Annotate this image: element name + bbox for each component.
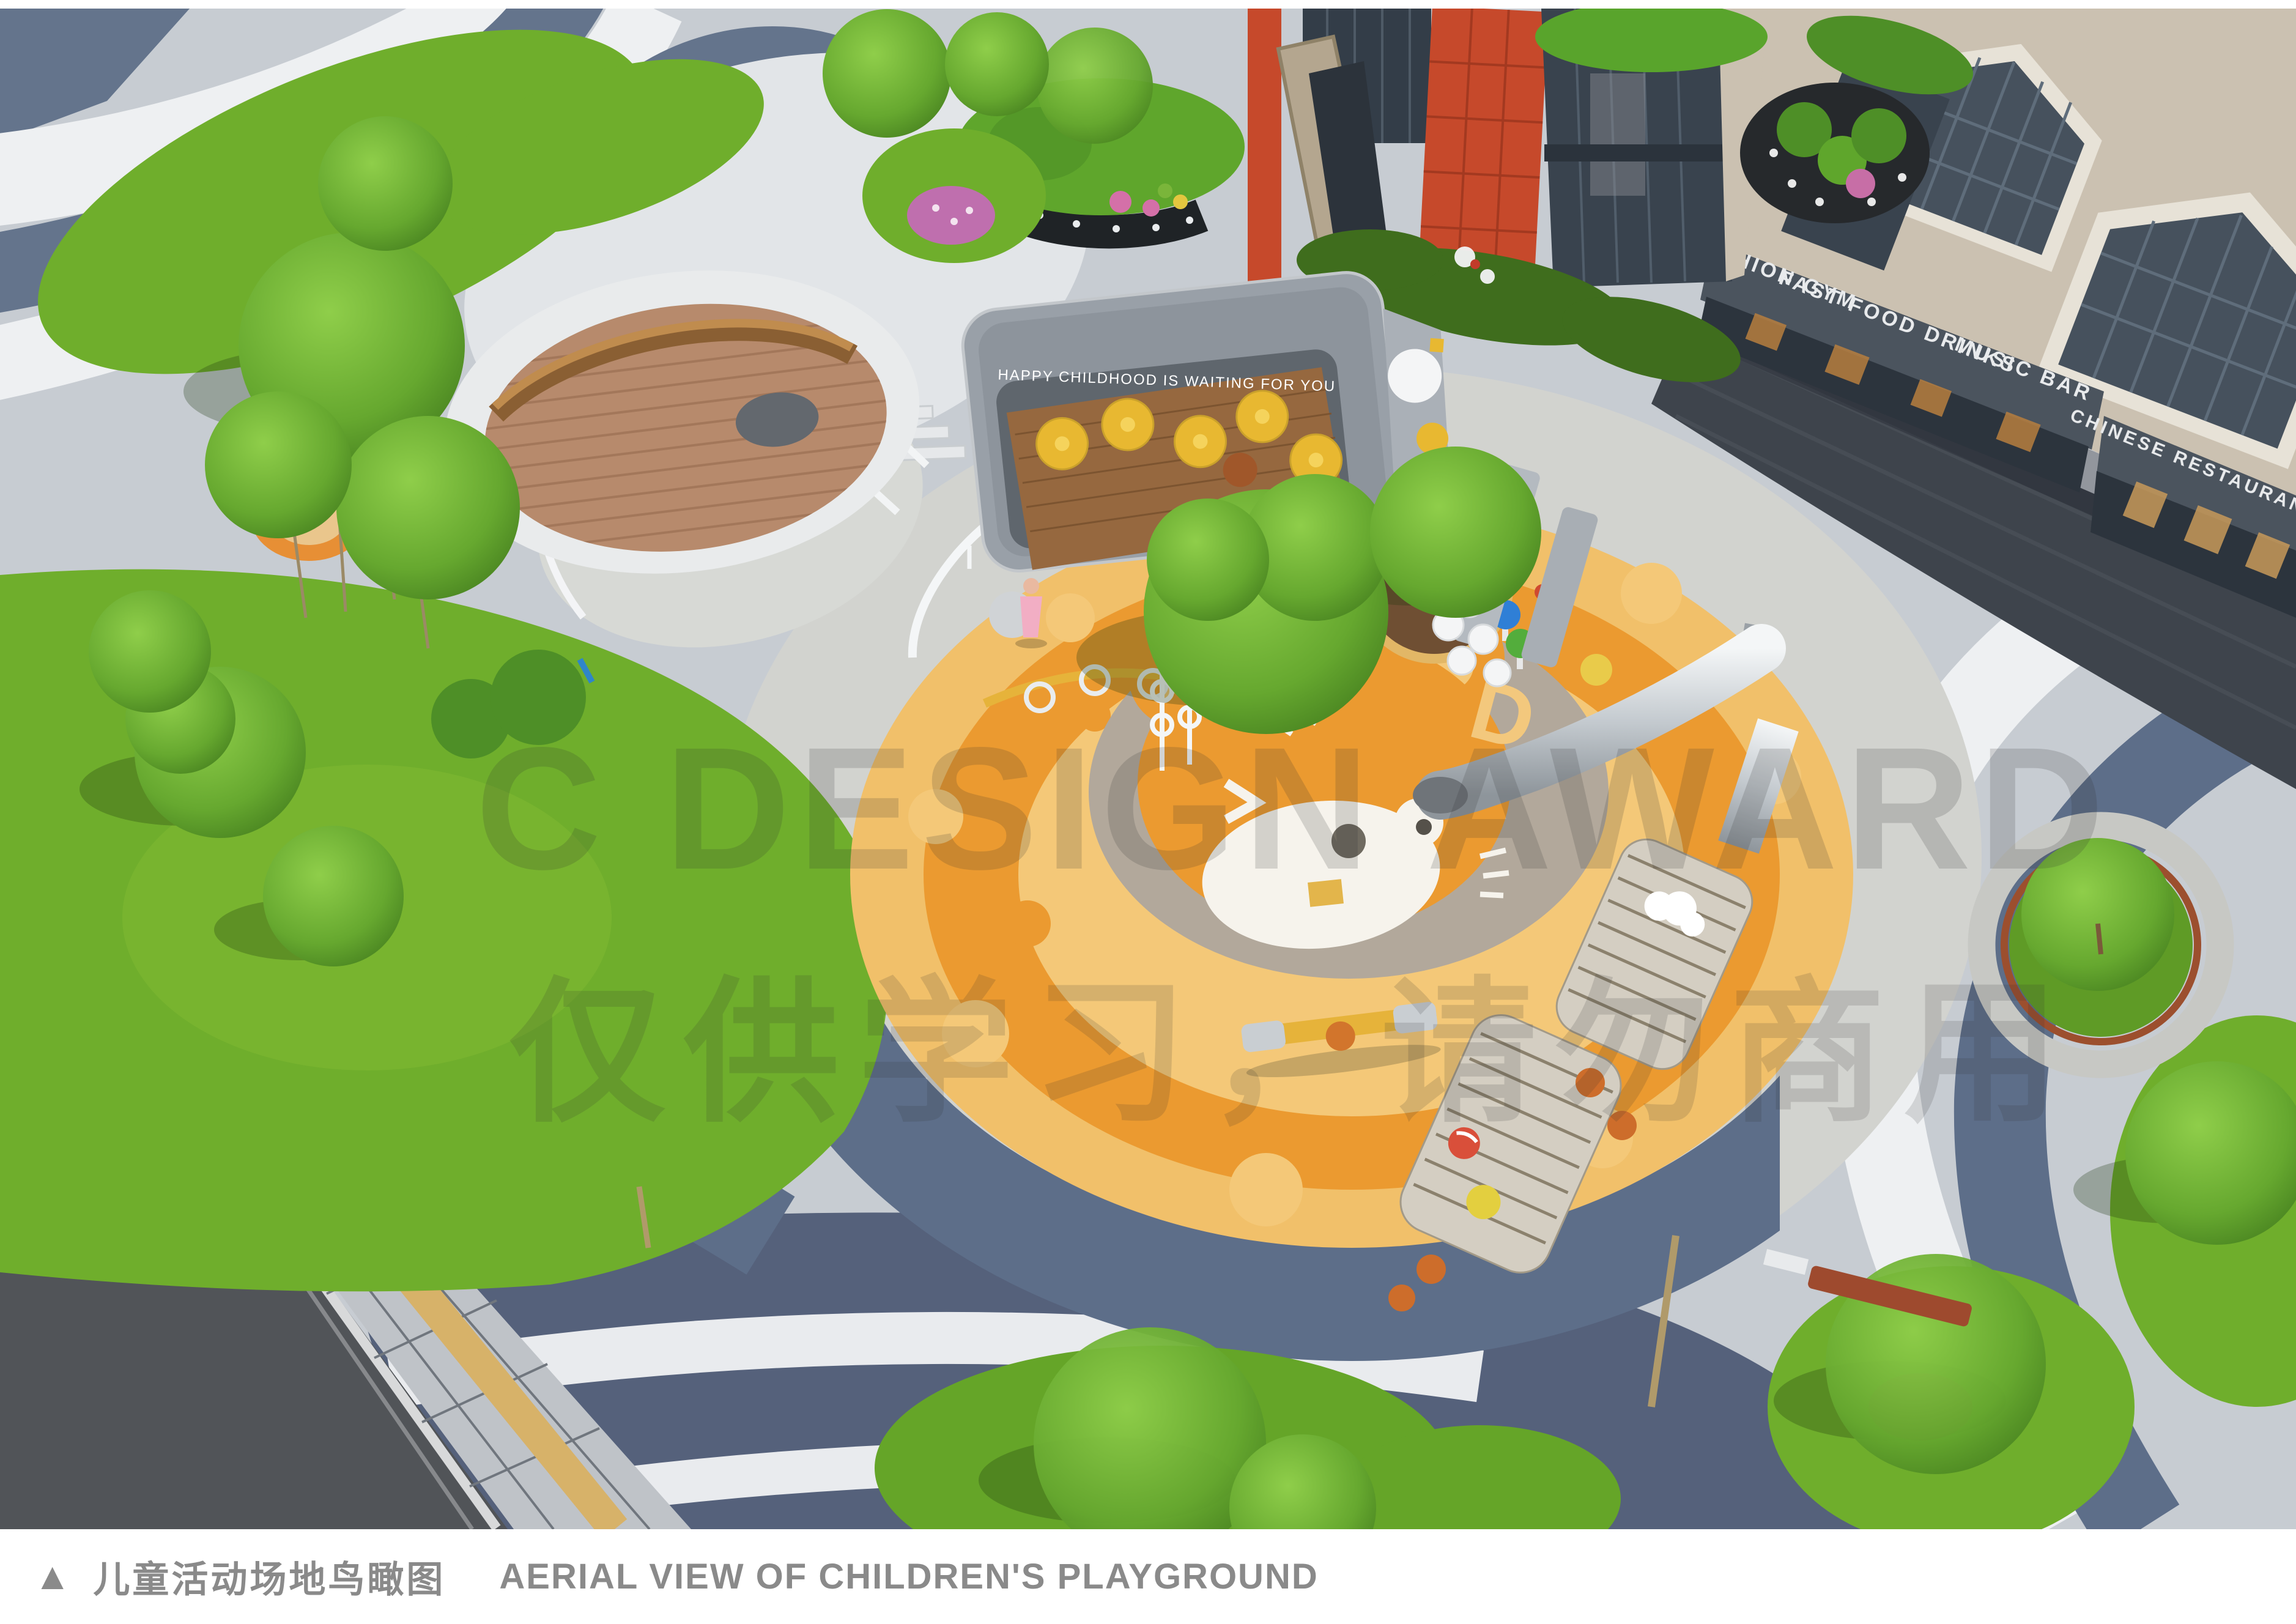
caption-bar: ▲ 儿童活动场地鸟瞰图 AERIAL VIEW OF CHILDREN'S PL…	[0, 1529, 2296, 1624]
page: FASHION GYM FAST FOOD DRINKS MUSIC BAR C…	[0, 0, 2296, 1624]
caption-marker-icon: ▲	[34, 1558, 71, 1596]
caption-title-cn: 儿童活动场地鸟瞰图	[93, 1550, 445, 1603]
watermark-line1: C DESIGN AWARD	[475, 711, 2111, 906]
caption-title-en: AERIAL VIEW OF CHILDREN'S PLAYGROUND	[499, 1556, 1318, 1597]
red-column-small	[1248, 9, 1281, 314]
red-facade-tower	[1418, 9, 1549, 290]
watermark-line2: 仅供学习，请勿商用	[509, 966, 2078, 1141]
entrance-shrub	[1037, 28, 1153, 144]
dark-plant-pot	[1740, 83, 1930, 223]
aerial-photo: FASHION GYM FAST FOOD DRINKS MUSIC BAR C…	[0, 9, 2296, 1529]
flower-bed	[907, 186, 995, 245]
